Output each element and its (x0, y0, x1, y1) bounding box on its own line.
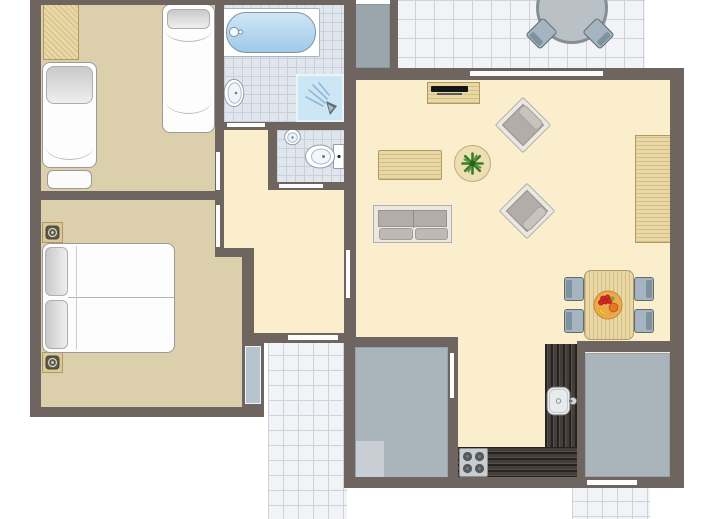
wardrobe (43, 4, 79, 60)
bedroom2-floor-ext (215, 252, 242, 407)
stove-burners-icon (459, 448, 488, 477)
dining-chair-bl-backrest (566, 312, 572, 330)
dining-chair-tl-backrest (566, 280, 572, 298)
shower-spray-icon (302, 80, 340, 118)
dining-chair-tr (634, 277, 654, 301)
sofa-seat-cushion-a (379, 228, 413, 240)
double-bed-pillow-a (45, 247, 68, 296)
door-bathroom (227, 123, 265, 127)
door-front (288, 335, 338, 340)
dining-chair-tr-backrest (646, 280, 652, 298)
single-bed-2-footboard (47, 170, 92, 189)
sofa (373, 205, 452, 243)
floorplan (0, 0, 713, 519)
wall-right (670, 68, 684, 488)
door-wc (279, 184, 323, 188)
wall-storage-b-left (577, 341, 585, 478)
plant-icon (461, 152, 484, 175)
door-bedroom2 (216, 205, 220, 247)
wall-storage-a-top (344, 337, 458, 347)
coffee-table (378, 150, 442, 180)
double-bed-fold (76, 246, 77, 350)
window-bedroom2 (245, 346, 261, 404)
bathtub-faucet-icon (228, 24, 244, 40)
door-back (587, 480, 637, 485)
wall-storage-b-top (577, 341, 684, 352)
door-living (346, 250, 350, 298)
toilet-icon (304, 143, 345, 170)
entrance-path (268, 340, 347, 519)
wall-wc-left (268, 130, 277, 190)
wall-bedroom2-bottom (30, 407, 264, 417)
wall-top (30, 0, 356, 5)
door-storage-a (450, 353, 454, 398)
single-bed-1-pillow (167, 9, 210, 29)
wall-bedroom2-right (242, 248, 254, 343)
door-terrace (470, 71, 603, 76)
wall-storage-a-left (344, 343, 355, 488)
cabinet (635, 135, 673, 243)
storage-a-mat (356, 441, 384, 477)
double-bed-split (68, 297, 174, 298)
fruit-bowl-icon (593, 290, 623, 320)
kitchen-sink-icon (546, 384, 577, 418)
storage-b-floor (585, 353, 670, 477)
sofa-seat-cushion-b (415, 228, 449, 240)
wall-terrace-left (390, 0, 398, 68)
lamp-b-icon (45, 355, 60, 370)
single-bed-2-pillow (46, 66, 93, 104)
dining-chair-tl (564, 277, 584, 301)
double-bed-pillow-b (45, 300, 68, 349)
wall-left (30, 0, 41, 417)
lamp-a-icon (45, 225, 60, 240)
tv (431, 86, 468, 92)
tv-base (437, 93, 462, 95)
utility-block (351, 4, 390, 68)
bathroom-sink-icon (221, 76, 245, 110)
dining-chair-br (634, 309, 654, 333)
back-path (572, 486, 650, 519)
sofa-back-divider (413, 210, 414, 228)
dining-chair-bl (564, 309, 584, 333)
dining-chair-br-backrest (646, 312, 652, 330)
door-bedroom1 (216, 152, 220, 190)
wall-bedrooms-divider (30, 191, 224, 200)
